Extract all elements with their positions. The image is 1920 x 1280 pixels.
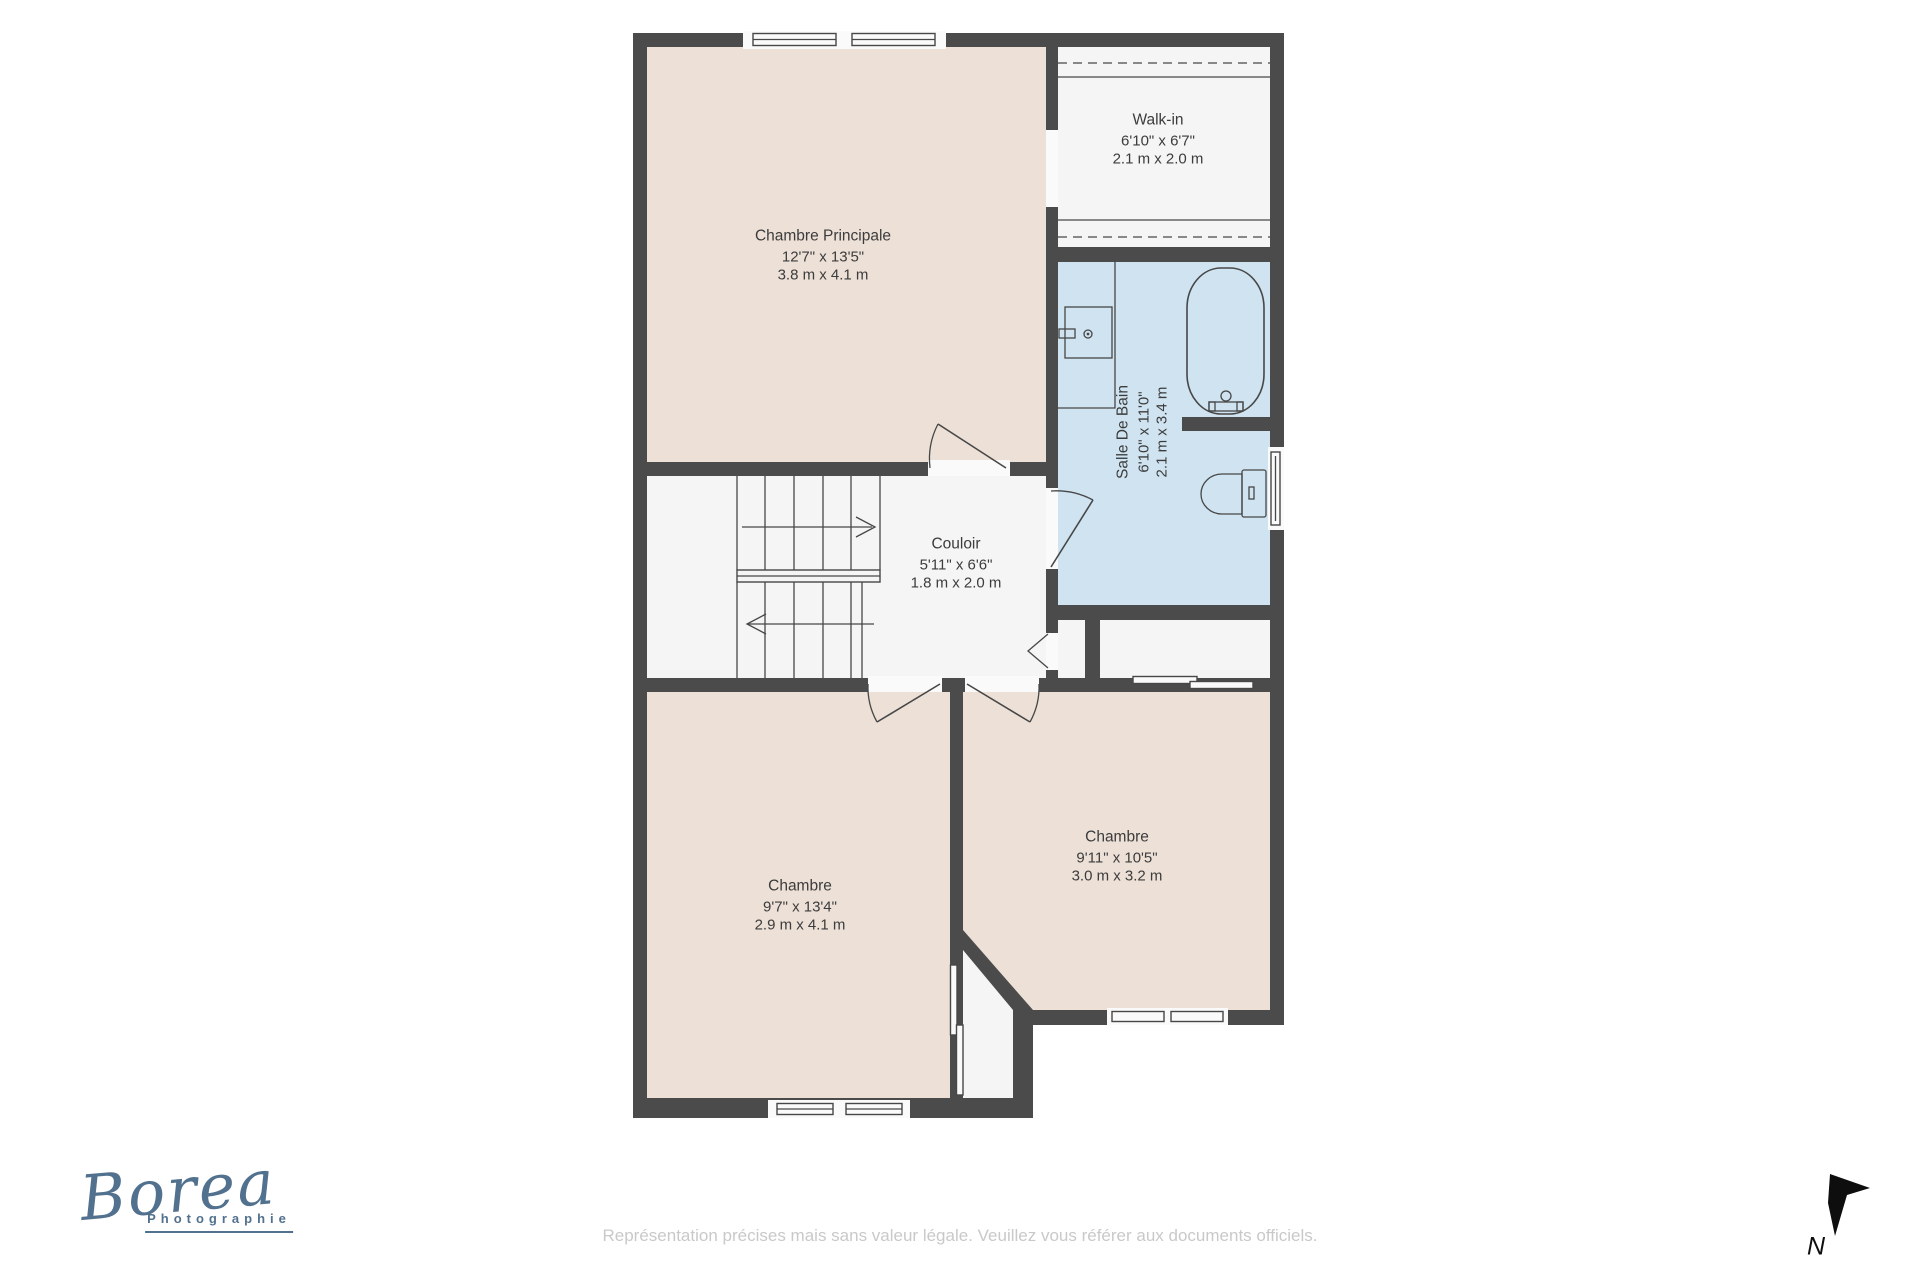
room-dim-imperial: 6'10" x 11'0" (1136, 385, 1154, 479)
room-dim-imperial: 9'7" x 13'4" (755, 899, 846, 917)
sliding-door-closet-chambre-1 (957, 1025, 964, 1095)
room-label-chambre-1: Chambre 9'7" x 13'4" 2.9 m x 4.1 m (755, 878, 846, 935)
window-chambre-1-bottom (768, 1100, 910, 1118)
room-dim-metric: 2.9 m x 4.1 m (755, 917, 846, 935)
room-dim-imperial: 9'11" x 10'5" (1072, 850, 1163, 868)
room-name: Chambre (755, 878, 846, 896)
room-dim-metric: 3.0 m x 3.2 m (1072, 868, 1163, 886)
north-label: N (1807, 1233, 1825, 1262)
room-dim-metric: 2.1 m x 2.0 m (1113, 151, 1204, 169)
room-name: Walk-in (1113, 112, 1204, 130)
floorplan-drawing (0, 0, 1920, 1280)
room-label-chambre-principale: Chambre Principale 12'7" x 13'5" 3.8 m x… (755, 228, 891, 285)
window-chambre-2-bottom (1107, 1008, 1228, 1025)
north-arrow-icon (1828, 1174, 1870, 1236)
room-dim-imperial: 5'11" x 6'6" (911, 557, 1002, 575)
stair-handrail (737, 570, 880, 582)
room-dim-imperial: 6'10" x 6'7" (1113, 133, 1204, 151)
room-label-walk-in: Walk-in 6'10" x 6'7" 2.1 m x 2.0 m (1113, 112, 1204, 169)
room-floor-closet-chambre-2 (1100, 620, 1270, 678)
opening-walk-in (1046, 130, 1058, 207)
floorplan-page: Chambre Principale 12'7" x 13'5" 3.8 m x… (0, 0, 1920, 1280)
room-name: Chambre Principale (755, 228, 891, 246)
faucet-dot (1087, 333, 1090, 336)
sliding-door-closet-chambre-2 (1133, 677, 1197, 684)
room-dim-metric: 2.1 m x 3.4 m (1154, 385, 1172, 479)
room-name: Chambre (1072, 829, 1163, 847)
sliding-door-closet-chambre-2 (1190, 682, 1253, 689)
room-dim-metric: 3.8 m x 4.1 m (755, 267, 891, 285)
window-bathroom-right (1268, 447, 1284, 530)
legal-disclaimer: Représentation précises mais sans valeur… (603, 1226, 1318, 1246)
window-master-top (743, 31, 946, 49)
room-dim-metric: 1.8 m x 2.0 m (911, 575, 1002, 593)
room-name: Couloir (911, 536, 1002, 554)
room-label-couloir: Couloir 5'11" x 6'6" 1.8 m x 2.0 m (911, 536, 1002, 593)
room-label-salle-de-bain: Salle De Bain 6'10" x 11'0" 2.1 m x 3.4 … (1115, 385, 1172, 479)
opening-linen-closet (1046, 633, 1058, 670)
opening-bathroom-door (1046, 488, 1058, 569)
tub-privacy-wall (1182, 417, 1270, 431)
room-label-chambre-2: Chambre 9'11" x 10'5" 3.0 m x 3.2 m (1072, 829, 1163, 886)
room-dim-imperial: 12'7" x 13'5" (755, 249, 891, 267)
room-floor-linen-closet (1058, 620, 1085, 678)
room-name: Salle De Bain (1115, 385, 1133, 479)
logo-subtitle: Photographie (145, 1211, 293, 1233)
